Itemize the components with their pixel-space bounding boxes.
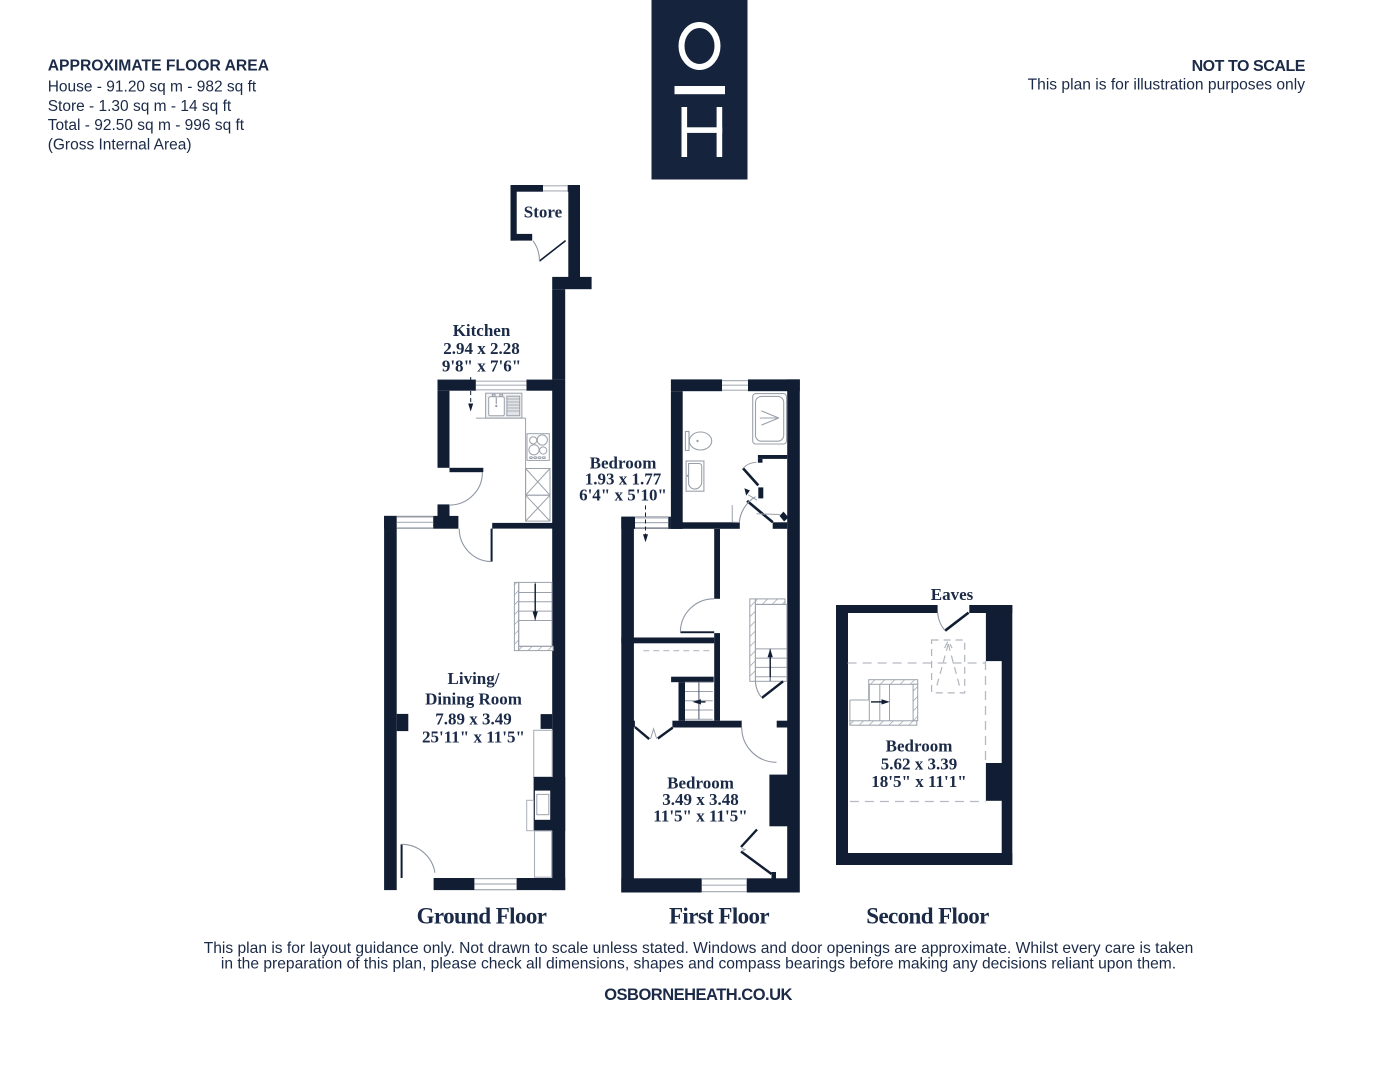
svg-text:18'5" x 11'1": 18'5" x 11'1" (871, 772, 966, 791)
svg-text:Second Floor: Second Floor (866, 904, 989, 929)
svg-text:5.62 x 3.39: 5.62 x 3.39 (881, 754, 958, 773)
svg-text:7.89 x 3.49: 7.89 x 3.49 (435, 710, 512, 729)
svg-text:House - 91.20 sq m - 982 sq ft: House - 91.20 sq m - 982 sq ft (48, 79, 257, 96)
svg-text:Kitchen: Kitchen (453, 321, 511, 340)
svg-text:Store: Store (524, 203, 563, 222)
svg-text:11'5" x 11'5": 11'5" x 11'5" (653, 806, 747, 825)
svg-text:6'4" x 5'10": 6'4" x 5'10" (579, 486, 667, 505)
svg-text:9'8" x 7'6": 9'8" x 7'6" (442, 357, 521, 376)
svg-text:Dining Room: Dining Room (425, 690, 522, 709)
svg-text:OSBORNEHEATH.CO.UK: OSBORNEHEATH.CO.UK (604, 986, 792, 1004)
svg-text:NOT TO SCALE: NOT TO SCALE (1192, 58, 1306, 75)
svg-text:First Floor: First Floor (669, 904, 769, 929)
svg-text:This plan is for illustration: This plan is for illustration purposes o… (1028, 77, 1306, 94)
svg-text:Bedroom: Bedroom (886, 736, 953, 755)
svg-text:Living/: Living/ (448, 669, 500, 688)
svg-text:APPROXIMATE FLOOR AREA: APPROXIMATE FLOOR AREA (48, 58, 269, 75)
svg-text:Ground Floor: Ground Floor (417, 904, 547, 929)
svg-text:2.94 x 2.28: 2.94 x 2.28 (443, 339, 520, 358)
svg-text:in the preparation of this pla: in the preparation of this plan, please … (221, 956, 1176, 973)
svg-text:25'11" x 11'5": 25'11" x 11'5" (422, 728, 525, 747)
svg-text:Total - 92.50 sq m - 996 sq ft: Total - 92.50 sq m - 996 sq ft (48, 117, 245, 134)
svg-text:Store - 1.30 sq m - 14 sq ft: Store - 1.30 sq m - 14 sq ft (48, 98, 232, 115)
svg-text:(Gross Internal Area): (Gross Internal Area) (48, 137, 192, 154)
svg-text:Eaves: Eaves (931, 585, 974, 604)
